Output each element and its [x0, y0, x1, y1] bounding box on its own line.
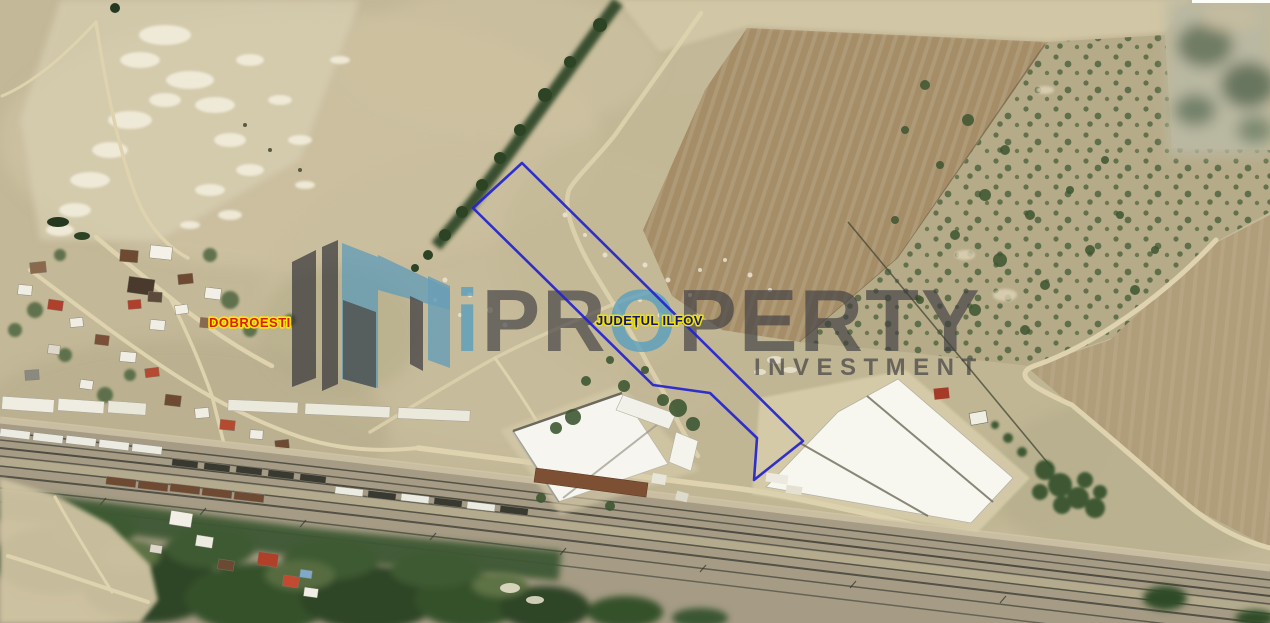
- imagery-seam: [1192, 0, 1270, 3]
- map-canvas: iPROPERTY INVESTMENT DOBROESTI JUDEȚUL I…: [0, 0, 1270, 623]
- label-judetul-ilfov: JUDEȚUL ILFOV: [596, 313, 703, 328]
- red-roof-hut: [934, 387, 950, 400]
- logo-subtitle: INVESTMENT: [754, 354, 984, 381]
- blurred-imagery-corner: [1168, 0, 1270, 155]
- label-dobroesti: DOBROESTI: [209, 315, 291, 330]
- satellite-map: iPROPERTY INVESTMENT DOBROESTI JUDEȚUL I…: [0, 0, 1270, 623]
- white-hut: [969, 411, 988, 426]
